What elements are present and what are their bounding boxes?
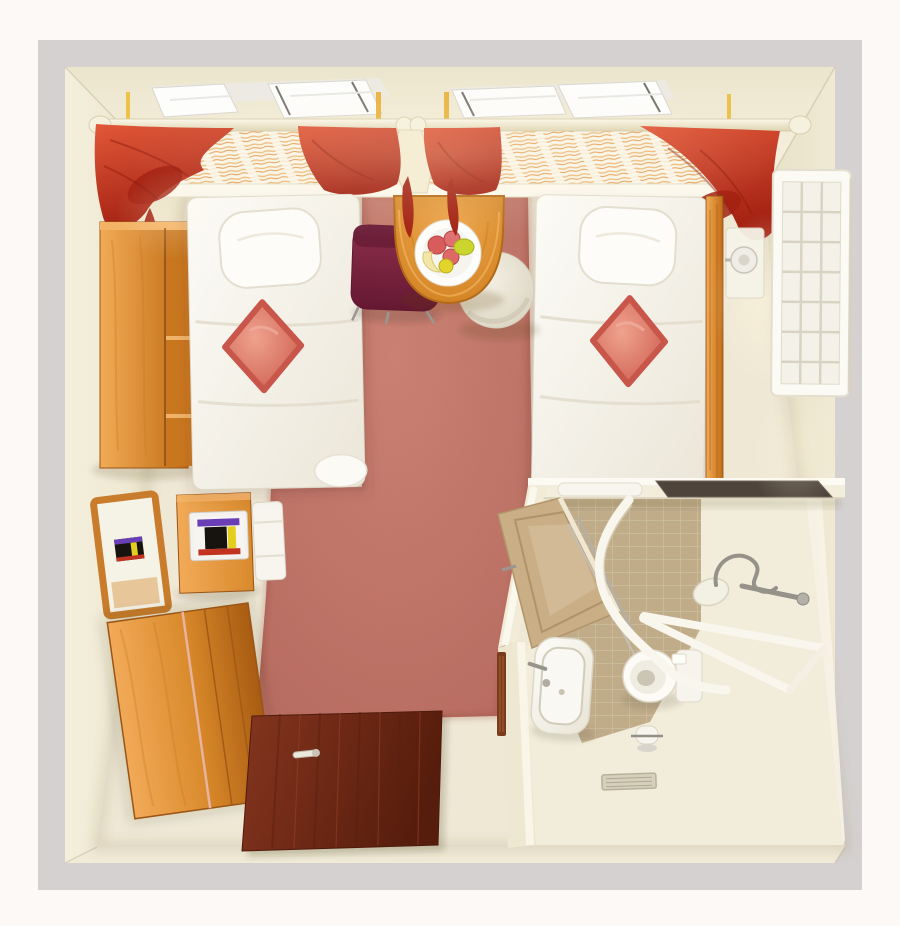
fruit-green-1 xyxy=(454,239,474,255)
entrance-door-panel xyxy=(242,711,442,851)
toilet-opening xyxy=(637,670,655,686)
mirror-wood-reflection xyxy=(111,577,160,608)
shower-bar-knob xyxy=(797,593,809,605)
fruit-yellow xyxy=(439,259,453,273)
mini-fridge-body xyxy=(252,501,286,580)
tv-on-cabinet xyxy=(172,492,260,601)
radiator-side-shade xyxy=(849,178,851,392)
tv-screen-yellow-bar xyxy=(228,526,237,548)
tv-screen-purple-bar xyxy=(197,518,239,526)
floor-drain xyxy=(602,773,656,790)
white-tray xyxy=(558,483,642,496)
entrance-door xyxy=(242,711,448,857)
wall-light-strip-left xyxy=(126,92,130,122)
right-wall-glow xyxy=(750,385,840,515)
rod-finial-right xyxy=(789,116,811,134)
wall-radiator-grille xyxy=(771,170,851,397)
wall-recess-wood xyxy=(497,652,506,736)
paper-holder-base xyxy=(637,744,657,752)
tv-screen-black xyxy=(205,527,228,550)
toilet-flush xyxy=(672,654,686,664)
wall-mirror xyxy=(93,494,169,617)
floor-plan-image xyxy=(0,0,900,926)
bathroom xyxy=(497,478,845,848)
floor-plan-svg xyxy=(0,0,900,926)
grab-rail-joint xyxy=(639,613,649,623)
mini-fridge xyxy=(252,501,286,580)
single-bed-right xyxy=(527,194,714,495)
bed-left-folded-blanket xyxy=(314,454,367,487)
wall-lamp-center xyxy=(739,255,750,266)
left-corner-glow xyxy=(115,170,235,260)
